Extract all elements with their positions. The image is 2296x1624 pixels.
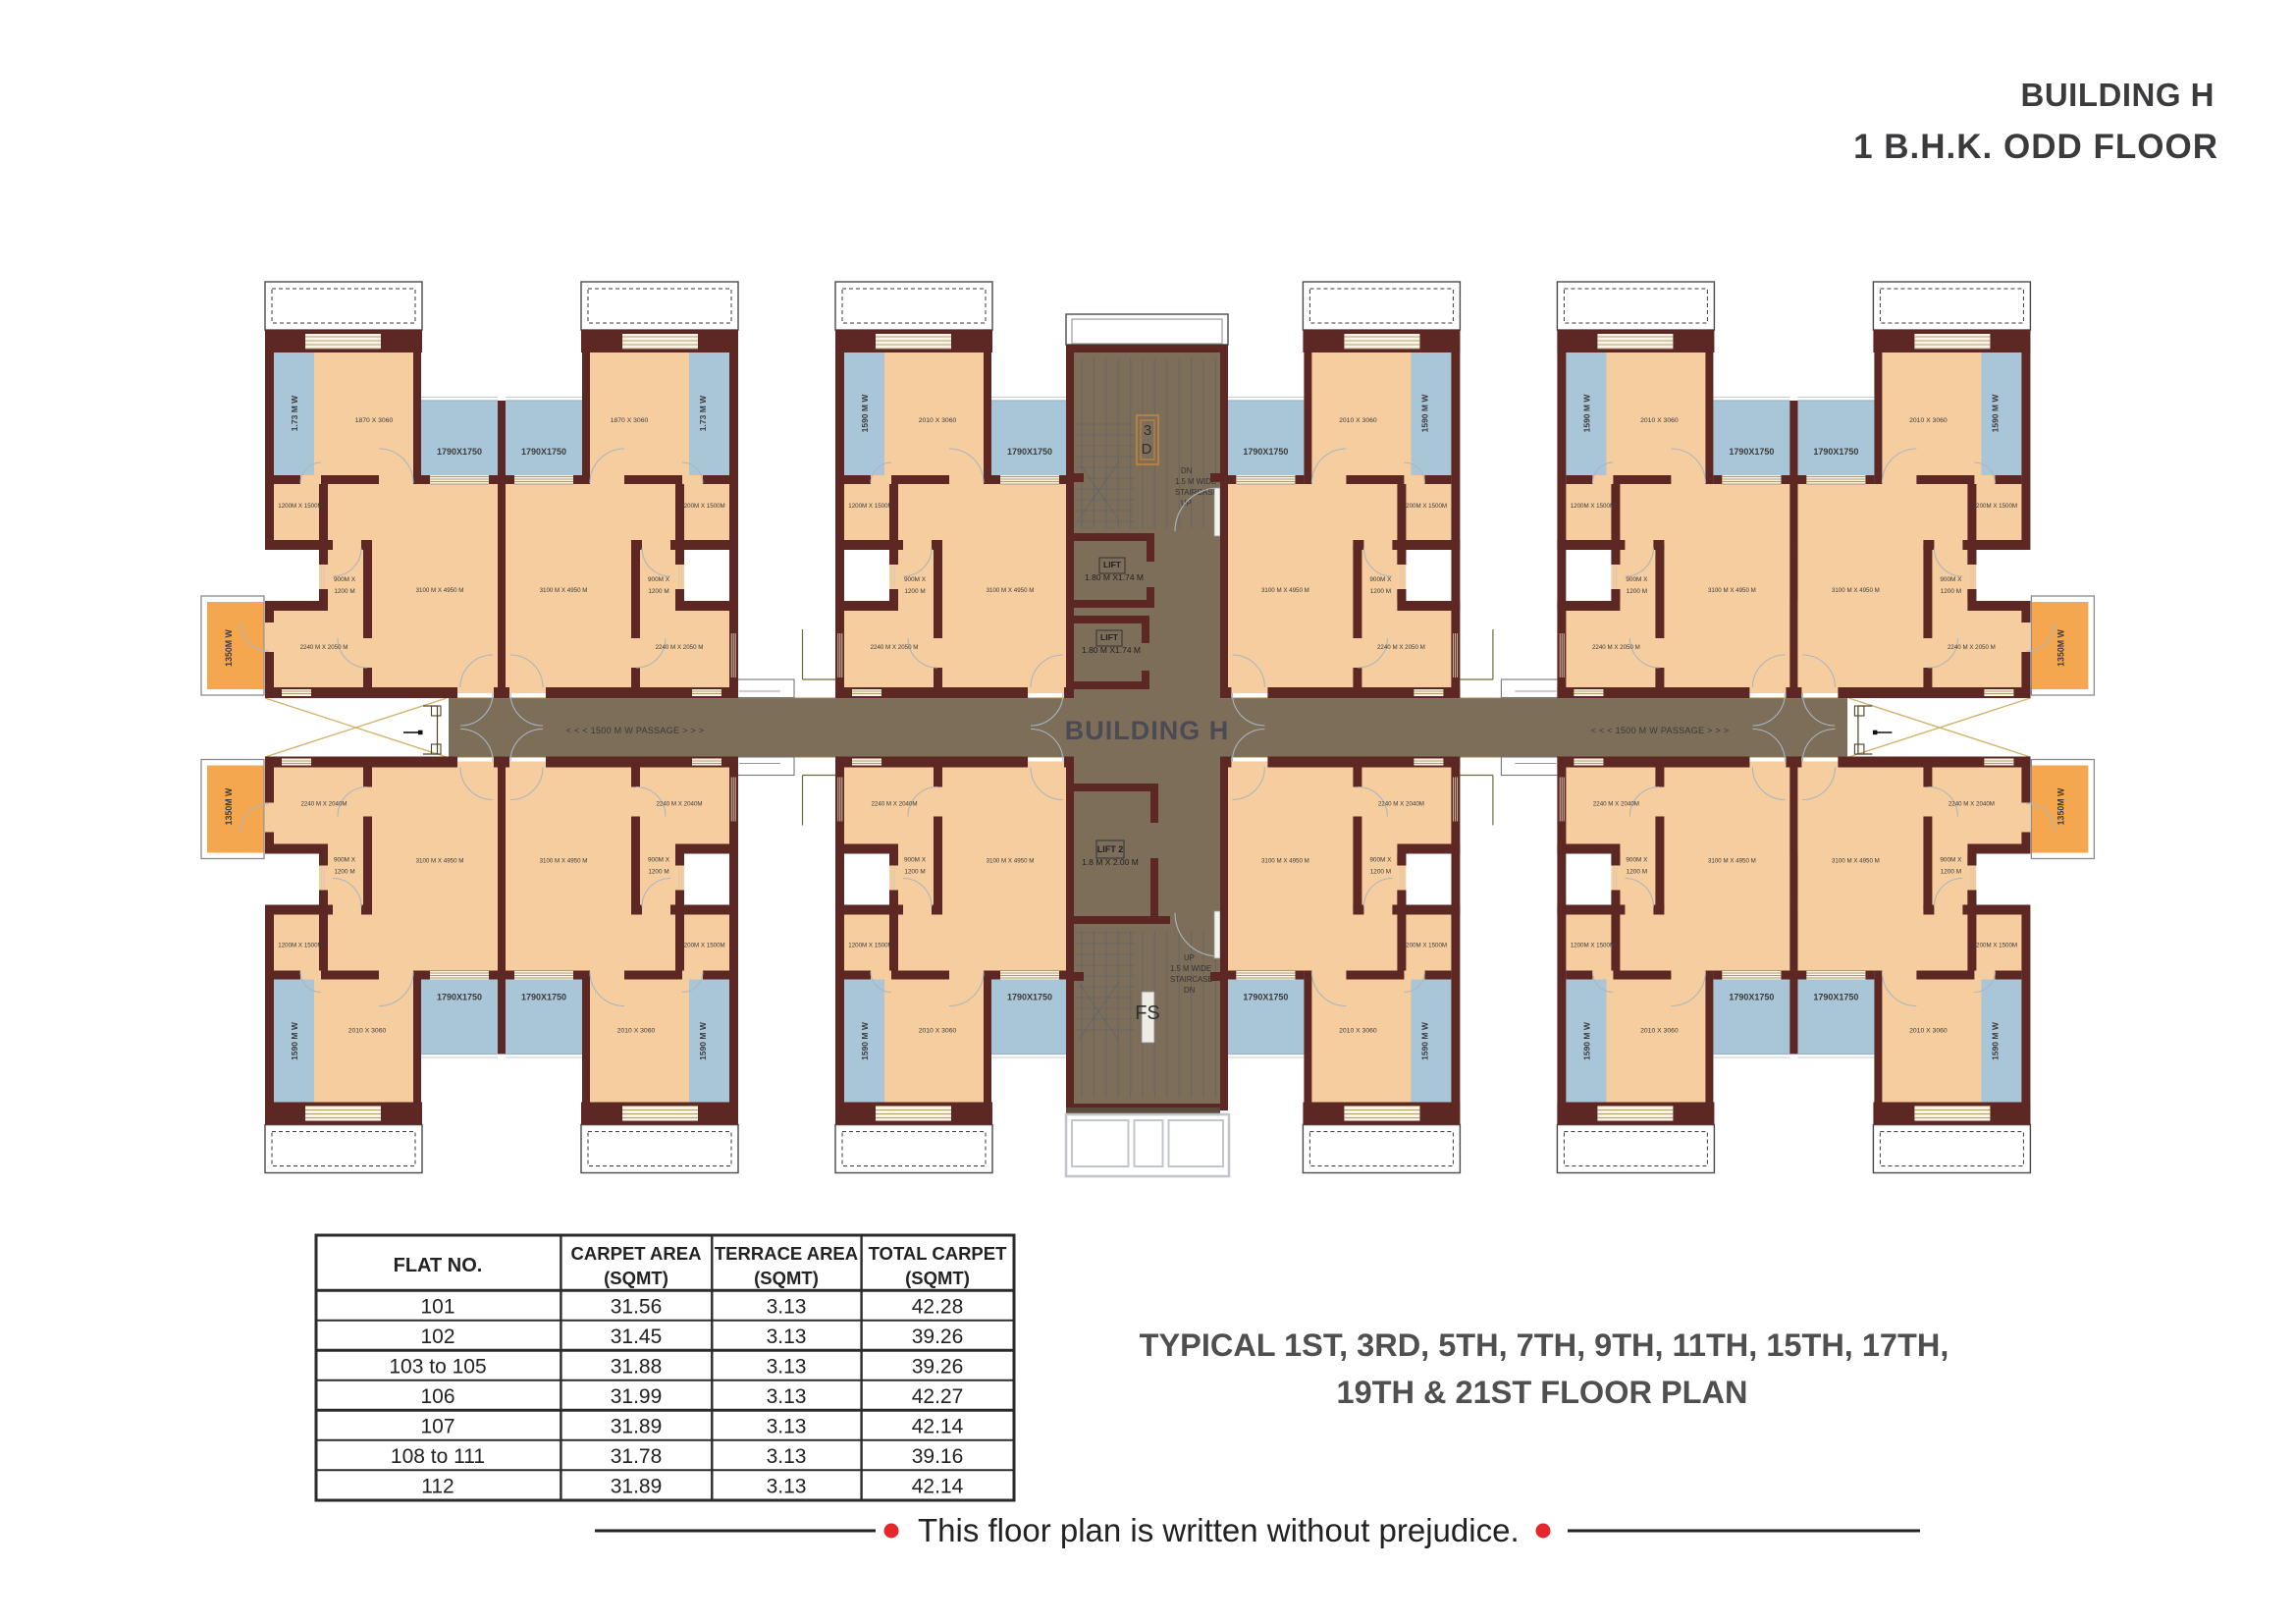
svg-text:2240 M X 2050 M: 2240 M X 2050 M	[1592, 644, 1640, 651]
svg-text:FS: FS	[1135, 1002, 1160, 1024]
svg-text:1200M X 1500M: 1200M X 1500M	[1973, 943, 2017, 949]
svg-text:< < < 1500 M W PASSAGE > > >: < < < 1500 M W PASSAGE > > >	[566, 726, 705, 735]
svg-text:42.27: 42.27	[912, 1385, 964, 1408]
svg-text:D: D	[1142, 441, 1152, 458]
svg-text:(SQMT): (SQMT)	[604, 1268, 668, 1288]
svg-text:2010 X 3060: 2010 X 3060	[919, 1028, 957, 1035]
svg-text:(SQMT): (SQMT)	[905, 1268, 970, 1288]
svg-text:1200 M: 1200 M	[334, 869, 354, 876]
svg-text:2240 M X 2040M: 2240 M X 2040M	[871, 801, 917, 808]
svg-text:2010 X 3060: 2010 X 3060	[1339, 1028, 1377, 1035]
svg-text:3: 3	[1144, 422, 1151, 439]
svg-text:3100 M X 4950 M: 3100 M X 4950 M	[1708, 858, 1756, 865]
svg-text:31.45: 31.45	[611, 1326, 663, 1348]
svg-text:2010 X 3060: 2010 X 3060	[1339, 417, 1377, 424]
svg-text:2010 X 3060: 2010 X 3060	[1909, 417, 1948, 424]
svg-text:TYPICAL 1ST, 3RD, 5TH, 7TH, 9T: TYPICAL 1ST, 3RD, 5TH, 7TH, 9TH, 11TH, 1…	[1140, 1327, 1949, 1363]
svg-text:3100 M X 4950 M: 3100 M X 4950 M	[987, 858, 1035, 865]
svg-text:2240 M X 2050 M: 2240 M X 2050 M	[300, 644, 348, 651]
svg-text:900M X: 900M X	[334, 576, 356, 583]
svg-text:2240 M X 2050 M: 2240 M X 2050 M	[1377, 644, 1425, 651]
svg-text:3100 M X 4950 M: 3100 M X 4950 M	[540, 587, 588, 594]
svg-text:1200M X 1500M: 1200M X 1500M	[1403, 943, 1447, 949]
svg-text:1200 M: 1200 M	[1941, 869, 1961, 876]
svg-text:This floor plan is written wit: This floor plan is written without preju…	[918, 1512, 1520, 1548]
svg-text:UP: UP	[1184, 953, 1195, 962]
svg-text:1200 M: 1200 M	[648, 588, 668, 595]
svg-text:900M X: 900M X	[1626, 857, 1648, 864]
svg-text:107: 107	[420, 1415, 454, 1437]
svg-text:(SQMT): (SQMT)	[754, 1268, 819, 1288]
svg-text:3100 M X 4950 M: 3100 M X 4950 M	[540, 858, 588, 865]
svg-text:31.56: 31.56	[611, 1295, 663, 1318]
svg-text:3.13: 3.13	[767, 1445, 807, 1468]
svg-text:1.8 M X 2.00 M: 1.8 M X 2.00 M	[1082, 857, 1139, 867]
svg-text:1200 M: 1200 M	[1370, 869, 1391, 876]
svg-text:2010 X 3060: 2010 X 3060	[348, 1028, 387, 1035]
svg-text:1200M X 1500M: 1200M X 1500M	[1403, 503, 1447, 510]
svg-text:LIFT 2: LIFT 2	[1097, 844, 1124, 854]
svg-text:3100 M X 4950 M: 3100 M X 4950 M	[1261, 858, 1309, 865]
svg-text:3100 M X 4950 M: 3100 M X 4950 M	[1261, 587, 1309, 594]
svg-text:1350M W: 1350M W	[224, 628, 234, 666]
svg-text:1.80 M X1.74 M: 1.80 M X1.74 M	[1082, 645, 1141, 655]
svg-text:2240 M X 2050 M: 2240 M X 2050 M	[656, 644, 704, 651]
svg-text:1590 M W: 1590 M W	[1419, 394, 1429, 433]
svg-text:2240 M X 2040M: 2240 M X 2040M	[656, 801, 702, 808]
svg-text:1200 M: 1200 M	[904, 869, 925, 876]
svg-text:1.5 M WIDE: 1.5 M WIDE	[1175, 477, 1216, 486]
svg-text:1590 M W: 1590 M W	[290, 1021, 299, 1060]
svg-text:1.73 M W: 1.73 M W	[698, 395, 708, 431]
svg-text:1790X1750: 1790X1750	[521, 993, 566, 1002]
svg-text:1200 M: 1200 M	[1941, 588, 1961, 595]
svg-text:1200 M: 1200 M	[1370, 588, 1391, 595]
svg-text:1200M X 1500M: 1200M X 1500M	[1571, 503, 1615, 510]
svg-text:LIFT: LIFT	[1103, 560, 1122, 569]
svg-text:2240 M X 2040M: 2240 M X 2040M	[300, 801, 347, 808]
svg-text:2010 X 3060: 2010 X 3060	[617, 1028, 656, 1035]
svg-text:112: 112	[421, 1475, 454, 1497]
svg-text:1.5 M WIDE: 1.5 M WIDE	[1170, 964, 1211, 973]
svg-text:102: 102	[420, 1326, 454, 1348]
svg-text:2240 M X 2050 M: 2240 M X 2050 M	[1948, 644, 1996, 651]
svg-text:< < < 1500 M W PASSAGE > > >: < < < 1500 M W PASSAGE > > >	[1591, 726, 1730, 735]
svg-text:900M X: 900M X	[334, 857, 356, 864]
svg-text:2240 M X 2040M: 2240 M X 2040M	[1949, 801, 1995, 808]
svg-text:1200M X 1500M: 1200M X 1500M	[848, 503, 892, 510]
svg-text:DN: DN	[1181, 466, 1192, 475]
svg-text:1200M X 1500M: 1200M X 1500M	[680, 503, 724, 510]
svg-text:1590 M W: 1590 M W	[860, 394, 870, 433]
svg-text:1.80 M X1.74 M: 1.80 M X1.74 M	[1085, 572, 1144, 582]
svg-text:2010 X 3060: 2010 X 3060	[1909, 1028, 1948, 1035]
svg-text:BUILDING H: BUILDING H	[2021, 77, 2216, 113]
svg-text:31.88: 31.88	[611, 1355, 663, 1378]
svg-text:3.13: 3.13	[767, 1355, 807, 1378]
svg-text:1200 M: 1200 M	[1627, 588, 1647, 595]
svg-text:1 B.H.K. ODD FLOOR: 1 B.H.K. ODD FLOOR	[1853, 128, 2218, 166]
svg-text:42.14: 42.14	[912, 1475, 964, 1497]
svg-text:1590 M W: 1590 M W	[1581, 394, 1591, 433]
svg-text:106: 106	[420, 1385, 454, 1408]
svg-text:1590 M W: 1590 M W	[698, 1021, 708, 1060]
svg-text:103 to 105: 103 to 105	[389, 1355, 486, 1378]
svg-text:1790X1750: 1790X1750	[1813, 993, 1858, 1002]
svg-text:1790X1750: 1790X1750	[1243, 993, 1288, 1002]
svg-text:31.89: 31.89	[611, 1415, 663, 1437]
svg-text:3100 M X 4950 M: 3100 M X 4950 M	[1708, 587, 1756, 594]
svg-text:1200 M: 1200 M	[1627, 869, 1647, 876]
svg-text:LIFT: LIFT	[1100, 632, 1119, 642]
svg-text:1790X1750: 1790X1750	[1007, 993, 1052, 1002]
svg-text:3.13: 3.13	[767, 1475, 807, 1497]
svg-text:1590 M W: 1590 M W	[1990, 394, 2000, 433]
svg-text:CARPET AREA: CARPET AREA	[571, 1243, 702, 1264]
svg-text:42.14: 42.14	[912, 1415, 964, 1437]
svg-text:1200M X 1500M: 1200M X 1500M	[1973, 503, 2017, 510]
svg-text:900M X: 900M X	[904, 857, 927, 864]
svg-text:BUILDING H: BUILDING H	[1065, 716, 1230, 745]
svg-text:3.13: 3.13	[767, 1326, 807, 1348]
svg-text:19TH & 21ST FLOOR PLAN: 19TH & 21ST FLOOR PLAN	[1337, 1375, 1748, 1410]
svg-text:1200 M: 1200 M	[648, 869, 668, 876]
svg-text:STAIRCASE: STAIRCASE	[1170, 975, 1213, 984]
svg-text:39.26: 39.26	[912, 1326, 964, 1348]
svg-text:31.89: 31.89	[611, 1475, 663, 1497]
svg-text:2240 M X 2040M: 2240 M X 2040M	[1378, 801, 1424, 808]
svg-text:TOTAL CARPET: TOTAL CARPET	[869, 1243, 1008, 1264]
svg-text:3100 M X 4950 M: 3100 M X 4950 M	[1832, 587, 1880, 594]
svg-text:900M X: 900M X	[1369, 857, 1392, 864]
svg-text:3.13: 3.13	[767, 1415, 807, 1437]
svg-text:39.26: 39.26	[912, 1355, 964, 1378]
svg-text:101: 101	[420, 1295, 454, 1318]
svg-text:1350M W: 1350M W	[224, 787, 234, 825]
svg-text:3100 M X 4950 M: 3100 M X 4950 M	[1832, 858, 1880, 865]
svg-text:3100 M X 4950 M: 3100 M X 4950 M	[987, 587, 1035, 594]
svg-text:900M X: 900M X	[1940, 576, 1962, 583]
svg-text:1590 M W: 1590 M W	[1990, 1021, 2000, 1060]
svg-text:1200M X 1500M: 1200M X 1500M	[278, 503, 322, 510]
svg-text:1790X1750: 1790X1750	[1243, 447, 1288, 457]
svg-text:1590 M W: 1590 M W	[1419, 1021, 1429, 1060]
svg-text:2010 X 3060: 2010 X 3060	[1640, 1028, 1679, 1035]
svg-text:1200M X 1500M: 1200M X 1500M	[1571, 943, 1615, 949]
svg-text:1350M W: 1350M W	[2056, 787, 2065, 825]
svg-text:1790X1750: 1790X1750	[437, 447, 482, 457]
svg-text:FLAT NO.: FLAT NO.	[394, 1255, 483, 1276]
svg-text:1200M X 1500M: 1200M X 1500M	[848, 943, 892, 949]
svg-text:900M X: 900M X	[1940, 857, 1962, 864]
svg-text:1200 M: 1200 M	[904, 588, 925, 595]
svg-text:1790X1750: 1790X1750	[1813, 447, 1858, 457]
svg-text:2240 M X 2040M: 2240 M X 2040M	[1593, 801, 1639, 808]
svg-text:DN: DN	[1184, 986, 1195, 995]
svg-text:3100 M X 4950 M: 3100 M X 4950 M	[416, 587, 464, 594]
svg-text:1350M W: 1350M W	[2056, 628, 2065, 666]
svg-text:2010 X 3060: 2010 X 3060	[1640, 417, 1679, 424]
svg-text:900M X: 900M X	[648, 857, 670, 864]
svg-text:1590 M W: 1590 M W	[860, 1021, 870, 1060]
svg-text:1200M X 1500M: 1200M X 1500M	[278, 943, 322, 949]
svg-text:1870 X 3060: 1870 X 3060	[355, 417, 394, 424]
svg-text:TERRACE AREA: TERRACE AREA	[715, 1243, 858, 1264]
svg-text:42.28: 42.28	[912, 1295, 964, 1318]
svg-text:31.99: 31.99	[611, 1385, 663, 1408]
svg-text:1790X1750: 1790X1750	[1729, 447, 1774, 457]
svg-text:1870 X 3060: 1870 X 3060	[611, 417, 649, 424]
svg-text:39.16: 39.16	[912, 1445, 964, 1468]
svg-text:900M X: 900M X	[648, 576, 670, 583]
svg-text:3100 M X 4950 M: 3100 M X 4950 M	[416, 858, 464, 865]
svg-text:900M X: 900M X	[904, 576, 927, 583]
svg-text:2240 M X 2050 M: 2240 M X 2050 M	[871, 644, 919, 651]
svg-text:3.13: 3.13	[767, 1385, 807, 1408]
svg-text:2010 X 3060: 2010 X 3060	[919, 417, 957, 424]
svg-text:31.78: 31.78	[611, 1445, 663, 1468]
svg-text:1790X1750: 1790X1750	[1007, 447, 1052, 457]
svg-text:1790X1750: 1790X1750	[521, 447, 566, 457]
svg-text:108 to 111: 108 to 111	[391, 1445, 485, 1468]
svg-text:1790X1750: 1790X1750	[437, 993, 482, 1002]
svg-text:900M X: 900M X	[1369, 576, 1392, 583]
svg-text:1.73 M W: 1.73 M W	[290, 395, 299, 431]
svg-text:1790X1750: 1790X1750	[1729, 993, 1774, 1002]
svg-text:1200M X 1500M: 1200M X 1500M	[680, 943, 724, 949]
svg-text:900M X: 900M X	[1626, 576, 1648, 583]
svg-text:1590 M W: 1590 M W	[1581, 1021, 1591, 1060]
svg-text:STAIRCASE: STAIRCASE	[1175, 488, 1218, 497]
svg-text:1200 M: 1200 M	[334, 588, 354, 595]
svg-text:3.13: 3.13	[767, 1295, 807, 1318]
